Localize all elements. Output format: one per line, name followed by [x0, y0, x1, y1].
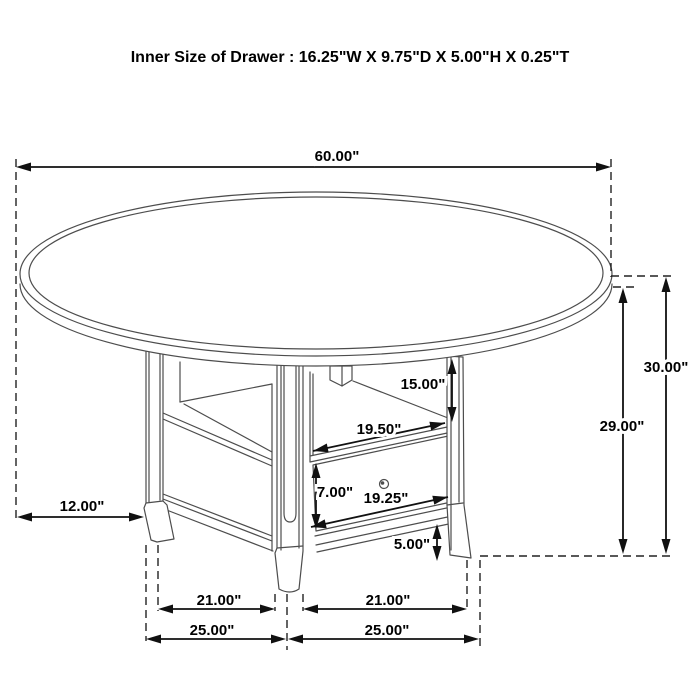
diagram-canvas: Inner Size of Drawer : 16.25"W X 9.75"D … — [0, 0, 700, 700]
drawer-front — [313, 435, 456, 531]
dim-label-table-diameter: 60.00" — [315, 148, 360, 165]
right-leg — [447, 356, 471, 558]
dim-label-drawer-front-width: 19.25" — [364, 490, 409, 507]
drawer-knob-center — [381, 481, 385, 485]
dim-label-overall-height: 30.00" — [644, 359, 689, 376]
tabletop — [20, 192, 612, 366]
back-leg-top — [330, 366, 352, 386]
left-leg — [144, 350, 174, 542]
dim-label-leg-span-right: 21.00" — [366, 592, 411, 609]
drawer-inner-size-title: Inner Size of Drawer : 16.25"W X 9.75"D … — [131, 49, 570, 66]
front-leg — [275, 358, 303, 592]
dim-label-base-rail-height: 5.00" — [394, 536, 430, 553]
dim-label-drawer-front-height: 7.00" — [317, 484, 353, 501]
dim-label-base-span-right: 25.00" — [365, 622, 410, 639]
dim-label-underside-height: 29.00" — [600, 418, 645, 435]
dim-label-shelf-opening-width: 19.50" — [357, 421, 402, 438]
dim-label-base-span-left: 25.00" — [190, 622, 235, 639]
dim-label-tabletop-overhang: 12.00" — [60, 498, 105, 515]
tabletop-outer-edge — [20, 192, 612, 356]
left-shelf-compartment — [163, 362, 273, 551]
table-dimension-diagram: Inner Size of Drawer : 16.25"W X 9.75"D … — [0, 0, 700, 700]
dim-label-open-shelf-height: 15.00" — [401, 376, 446, 393]
dim-label-leg-span-left: 21.00" — [197, 592, 242, 609]
